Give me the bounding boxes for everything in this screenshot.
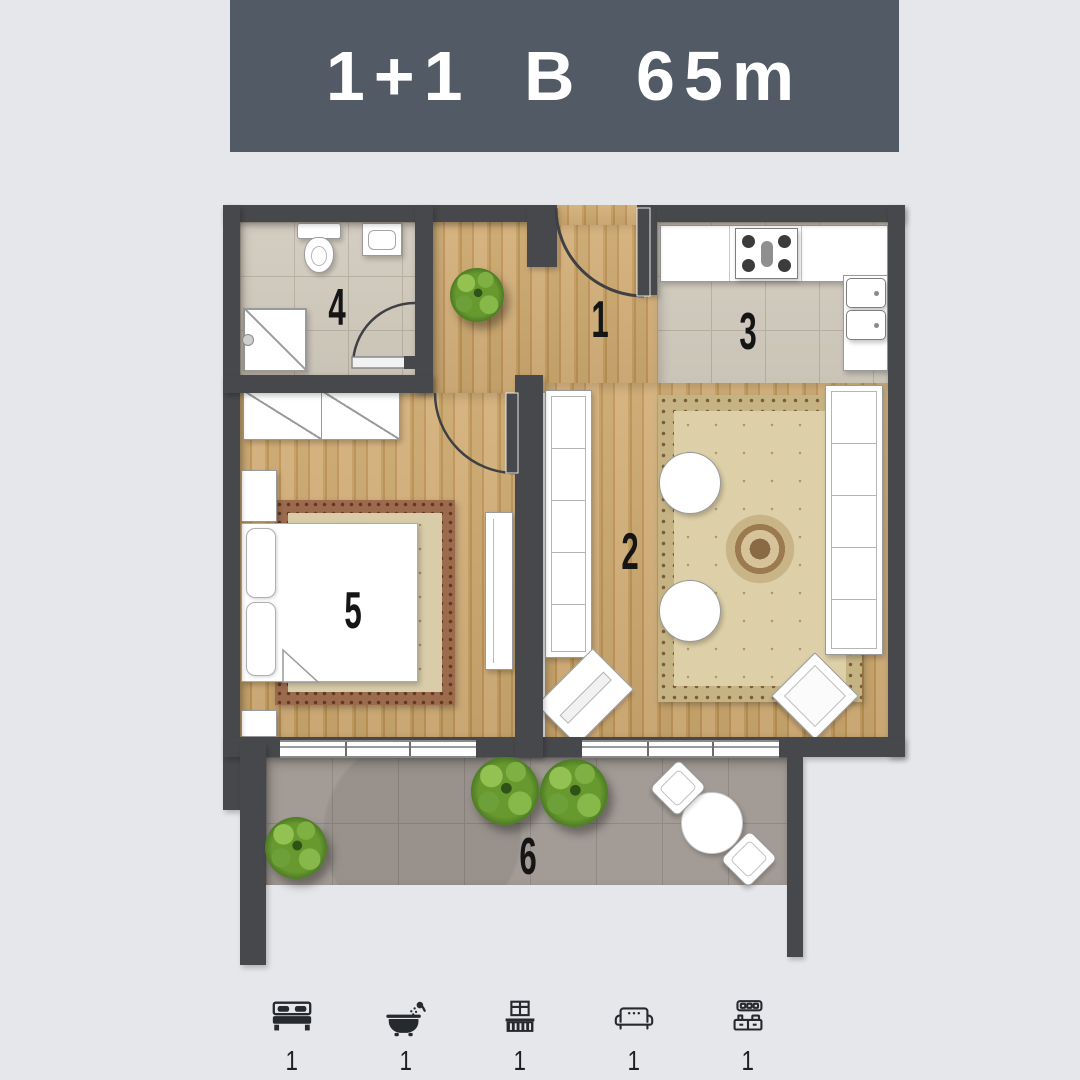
amenity-living-room: 1 <box>604 998 664 1080</box>
wall-segment <box>223 375 433 393</box>
page-title: 1+1 B 65m <box>326 36 803 116</box>
amenity-bathroom: 1 <box>376 998 436 1080</box>
balcony-wall <box>240 743 266 965</box>
room-label-kitchen: 3 <box>739 306 756 358</box>
wall-segment <box>637 205 657 295</box>
wardrobe-door <box>322 391 399 439</box>
floor-plan-page: 1+1 B 65m <box>0 0 1080 1080</box>
sofa-icon <box>611 998 657 1038</box>
pillow <box>246 602 276 676</box>
sofa-right <box>825 385 883 655</box>
bathroom-sink <box>362 223 402 256</box>
wall-segment <box>223 205 240 810</box>
nightstand <box>241 710 277 737</box>
stove-burner <box>742 235 755 248</box>
sofa-left <box>545 390 592 658</box>
room-label-bedroom: 5 <box>344 585 361 637</box>
amenity-count: 1 <box>400 1045 412 1077</box>
wall-segment <box>515 375 543 757</box>
wardrobe-door <box>244 391 322 439</box>
bedroom-dresser <box>485 512 513 670</box>
stove-burner <box>778 259 791 272</box>
rug-medallion <box>708 497 812 601</box>
kitchen-icon <box>725 998 771 1038</box>
amenity-count: 1 <box>286 1045 298 1077</box>
wall-segment <box>888 205 905 757</box>
bedroom-window <box>280 740 476 758</box>
kitchen-sink-basin <box>846 310 886 340</box>
bed-icon <box>269 998 315 1038</box>
wall-segment <box>657 205 905 222</box>
shower <box>243 308 307 372</box>
entry-doorway-floor <box>557 205 637 225</box>
wardrobe <box>243 390 400 440</box>
room-label-bathroom: 4 <box>328 282 345 334</box>
room-label-hall: 1 <box>591 294 608 346</box>
amenity-count: 1 <box>514 1045 526 1077</box>
wall-segment <box>415 205 433 393</box>
stove-burner <box>778 235 791 248</box>
stove-burner <box>742 259 755 272</box>
living-room-window <box>582 740 779 758</box>
potted-plant <box>265 817 327 879</box>
room-label-balcony: 6 <box>519 831 536 883</box>
sofa-cushions <box>551 396 586 652</box>
room-label-living-room: 2 <box>621 526 638 578</box>
kitchen-sink-basin <box>846 278 886 308</box>
amenity-count: 1 <box>628 1045 640 1077</box>
toilet <box>304 237 334 273</box>
round-side-table <box>659 452 721 514</box>
wall-segment <box>223 205 527 222</box>
round-side-table <box>659 580 721 642</box>
amenities-legend: 1 1 <box>262 998 778 1080</box>
potted-plant <box>540 759 608 827</box>
bathtub-icon <box>383 998 429 1038</box>
pillow <box>246 528 276 598</box>
amenity-balcony: 1 <box>490 998 550 1080</box>
amenity-bedroom: 1 <box>262 998 322 1080</box>
wall-segment <box>527 205 557 267</box>
stove <box>735 228 798 279</box>
amenity-count: 1 <box>742 1045 754 1077</box>
stove-center <box>761 241 773 267</box>
potted-plant <box>450 268 504 322</box>
amenity-kitchen: 1 <box>718 998 778 1080</box>
title-banner: 1+1 B 65m <box>230 0 899 152</box>
potted-plant <box>471 757 539 825</box>
balcony-wall <box>787 757 803 957</box>
nightstand <box>241 470 277 522</box>
sofa-cushions <box>831 391 877 649</box>
balcony-icon <box>497 998 543 1038</box>
